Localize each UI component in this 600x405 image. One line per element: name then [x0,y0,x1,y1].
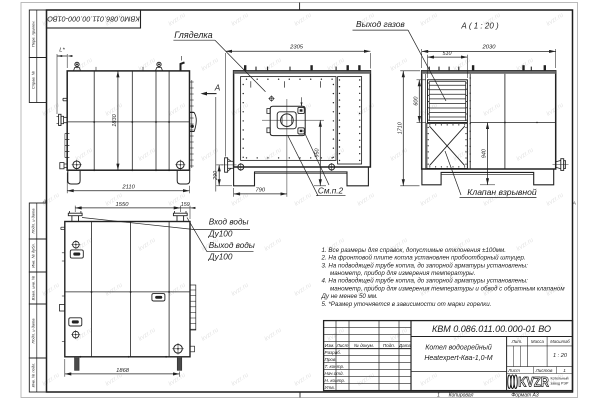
svg-text:Подп.: Подп. [383,343,395,348]
svg-text:4. На подводящей трубе котла,: 4. На подводящей трубе котла, до запорно… [322,278,529,285]
svg-text:№ докум.: № докум. [354,343,374,348]
svg-text:Масштаб: Масштаб [550,339,570,344]
svg-text:А: А [214,84,221,93]
svg-text:1 : 20: 1 : 20 [553,353,568,359]
svg-text:KVZR: KVZR [518,374,549,389]
svg-text:Справ. №: Справ. № [30,70,35,89]
svg-text:2. На фронтовой плите котла ус: 2. На фронтовой плите котла установлен п… [321,255,526,262]
svg-text:КВМ0.086.011.00.000-01ВО: КВМ0.086.011.00.000-01ВО [47,14,140,23]
svg-text:Ду100: Ду100 [208,230,233,239]
svg-text:1. Все размеры для справок, до: 1. Все размеры для справок, допустимые о… [322,247,507,254]
svg-text:159: 159 [181,202,190,208]
svg-text:510: 510 [443,51,452,57]
svg-text:600: 600 [413,97,419,106]
svg-text:Н. контр.: Н. контр. [325,378,346,383]
svg-text:5. *Размер уточняется в зависи: 5. *Размер уточняется в зависимости от м… [322,301,492,308]
svg-text:Инв. № подл.: Инв. № подл. [30,363,35,388]
svg-text:3. На подводящей трубе котла,: 3. На подводящей трубе котла, до запорно… [322,262,529,269]
svg-text:1: 1 [563,368,566,373]
svg-text:2305: 2305 [289,44,304,50]
svg-text:1868: 1868 [116,368,130,374]
svg-text:1: 1 [437,393,440,399]
svg-text:А ( 1 : 20 ): А ( 1 : 20 ) [460,21,499,30]
svg-text:Гляделка: Гляделка [174,30,212,40]
svg-text:КВМ 0.086.011.00.000-01 ВО: КВМ 0.086.011.00.000-01 ВО [432,324,551,334]
svg-text:Изм.: Изм. [325,343,335,348]
svg-text:Котел водогрейный: Котел водогрейный [425,343,492,351]
svg-text:Выход воды: Выход воды [209,241,255,250]
svg-text:Пров.: Пров. [325,357,337,362]
svg-text:Выход газов: Выход газов [356,19,405,29]
svg-text:Разраб.: Разраб. [325,350,342,355]
svg-text:Т. контр.: Т. контр. [325,364,345,369]
svg-text:1550: 1550 [116,202,130,208]
svg-text:1830: 1830 [112,113,118,126]
svg-text:завод РЭР: завод РЭР [551,382,570,386]
svg-text:Лист: Лист [336,343,349,348]
svg-text:Формат А3: Формат А3 [511,393,539,399]
svg-text:Ду100: Ду100 [208,253,233,262]
svg-text:А: А [42,199,46,204]
svg-text:Ду не менее 50 мм.: Ду не менее 50 мм. [321,293,378,300]
svg-text:См.п.2: См.п.2 [318,187,344,196]
svg-text:Лит.: Лит. [511,339,523,344]
svg-text:Взам. инв. №: Взам. инв. № [30,275,35,300]
svg-text:А: А [572,201,576,206]
svg-text:Листов: Листов [535,368,553,373]
svg-text:манометр, прибор для измерения: манометр, прибор для измерения температу… [330,270,475,277]
svg-text:940: 940 [482,149,488,158]
svg-text:Подп. и дата: Подп. и дата [30,208,35,234]
svg-text:290: 290 [213,171,219,181]
svg-text:Нач.отд.: Нач.отд. [325,371,344,376]
svg-text:Дата: Дата [398,343,412,348]
svg-text:Масса: Масса [531,339,545,344]
svg-text:Heatexpert-Ква-1,0-М: Heatexpert-Ква-1,0-М [424,355,492,362]
svg-text:L*: L* [59,48,65,54]
svg-text:Перв. примен.: Перв. примен. [30,20,35,47]
svg-text:Котельный: Котельный [551,377,569,381]
svg-text:Копировал: Копировал [449,393,474,399]
svg-text:2030: 2030 [482,45,497,51]
svg-text:Утв.: Утв. [325,385,335,390]
svg-text:манометр, прибор для измерения: манометр, прибор для измерения температу… [330,285,565,292]
svg-text:Клапан взрывной: Клапан взрывной [467,187,537,197]
svg-text:790: 790 [255,188,265,194]
svg-text:Инв. № дубл.: Инв. № дубл. [30,243,35,268]
svg-text:Лист: Лист [507,368,520,373]
svg-text:1710: 1710 [397,122,403,134]
svg-text:Вход воды: Вход воды [209,217,249,226]
svg-text:Подп. и дата: Подп. и дата [30,318,35,344]
svg-text:2110: 2110 [121,184,135,190]
